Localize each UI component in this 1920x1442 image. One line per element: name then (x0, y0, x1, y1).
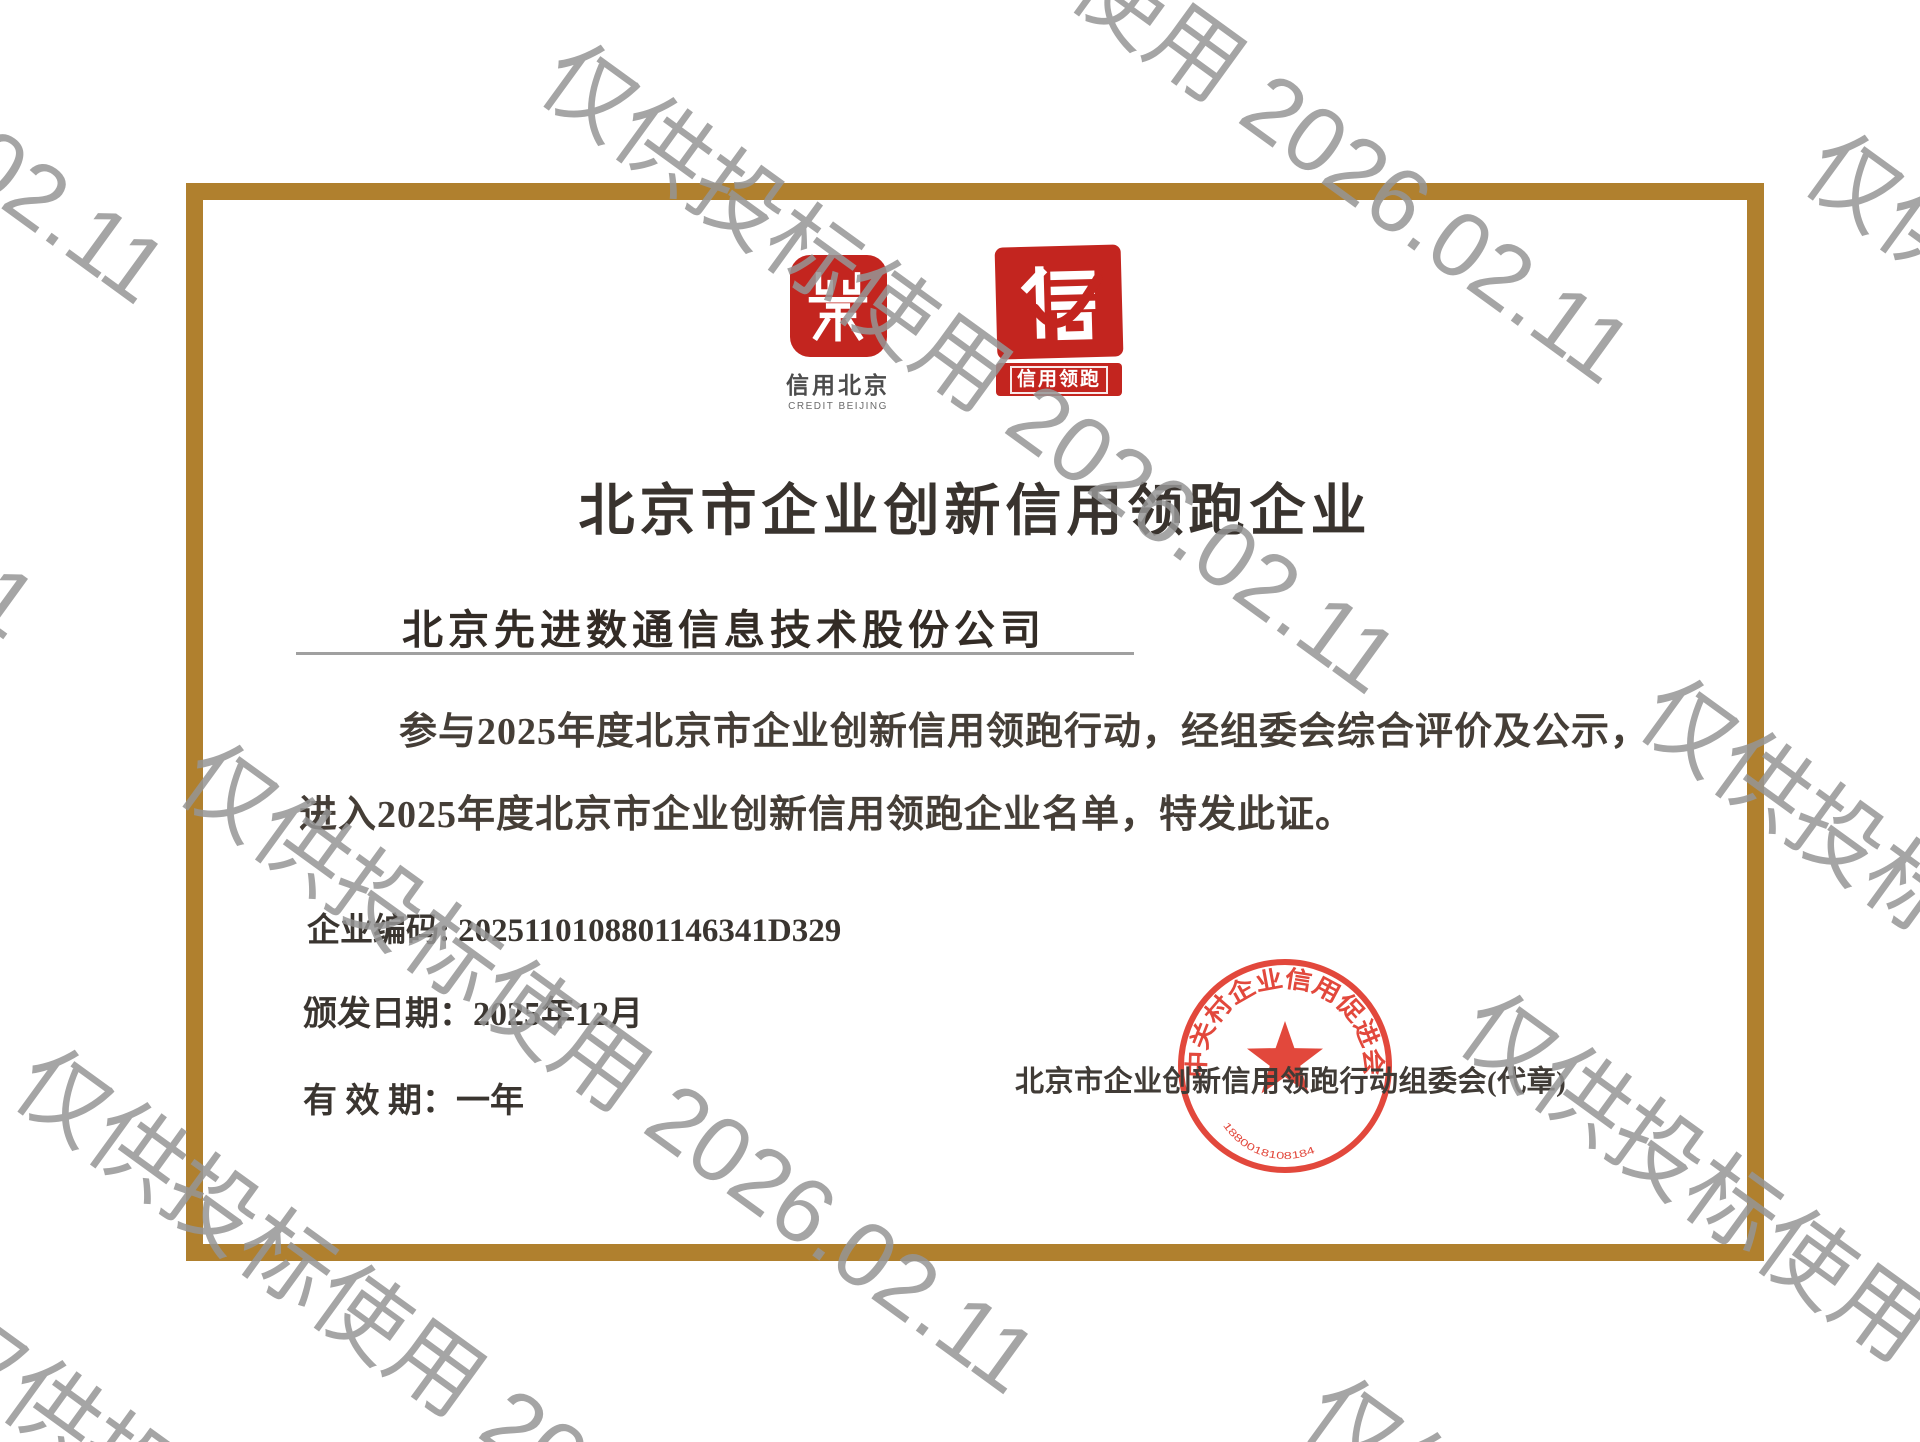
credit-leadrun-stamp-icon (995, 244, 1124, 359)
credit-beijing-emblem-icon (790, 255, 887, 357)
watermark-text: 仅供投标使用 2026.02.11 (0, 0, 199, 329)
certificate-title: 北京市企业创新信用领跑企业 (186, 466, 1764, 547)
enterprise-code-value: 2025110108801146341D329 (458, 913, 841, 949)
company-name: 北京先进数通信息技术股份公司 (402, 596, 1046, 656)
xin-character-glyph-icon (1008, 254, 1110, 351)
credit-beijing-caption-cn: 信用北京 (786, 366, 890, 400)
watermark-text: 仅供投标使用 2026.02.11 (0, 0, 69, 664)
issue-date-row: 颁发日期：2025年12月 (303, 986, 643, 1035)
validity-value: 一年 (456, 1083, 524, 1120)
credit-beijing-logo: 信用北京 CREDIT BEIJING (772, 255, 904, 412)
certificate-page: 信用北京 CREDIT BEIJING 信用领跑 北京市企业创新信用领跑企业 (0, 0, 1920, 1442)
watermark-text: 仅供投标使用 2026.02.11 (1782, 95, 1920, 809)
body-text-line1: 参与2025年度北京市企业创新信用领跑行动，经组委会综合评价及公示， (399, 700, 1649, 755)
watermark-text: 仅供投标使用 2026.02.11 (0, 1268, 819, 1442)
validity-row: 有 效 期：一年 (303, 1073, 524, 1122)
watermark-text: 仅供投标使用 2026.02.11 (1282, 1340, 1920, 1442)
body-text-line2: 进入2025年度北京市企业创新信用领跑企业名单，特发此证。 (299, 783, 1354, 838)
enterprise-code-label: 企业编码: (307, 913, 450, 949)
credit-beijing-caption-en: CREDIT BEIJING (788, 401, 888, 412)
beijing-seal-glyph-icon (799, 264, 877, 348)
credit-leadrun-logo: 信用领跑 (996, 246, 1124, 396)
credit-leadrun-band-label: 信用领跑 (1010, 366, 1108, 394)
enterprise-code-row: 企业编码:2025110108801146341D329 (307, 903, 841, 951)
validity-label: 有 效 期： (303, 1083, 456, 1120)
issuer-committee: 北京市企业创新信用领跑行动组委会(代章) (1015, 1058, 1566, 1100)
credit-leadrun-band: 信用领跑 (996, 363, 1122, 396)
issue-date-label: 颁发日期： (303, 996, 473, 1033)
issue-date-value: 2025年12月 (473, 996, 643, 1033)
